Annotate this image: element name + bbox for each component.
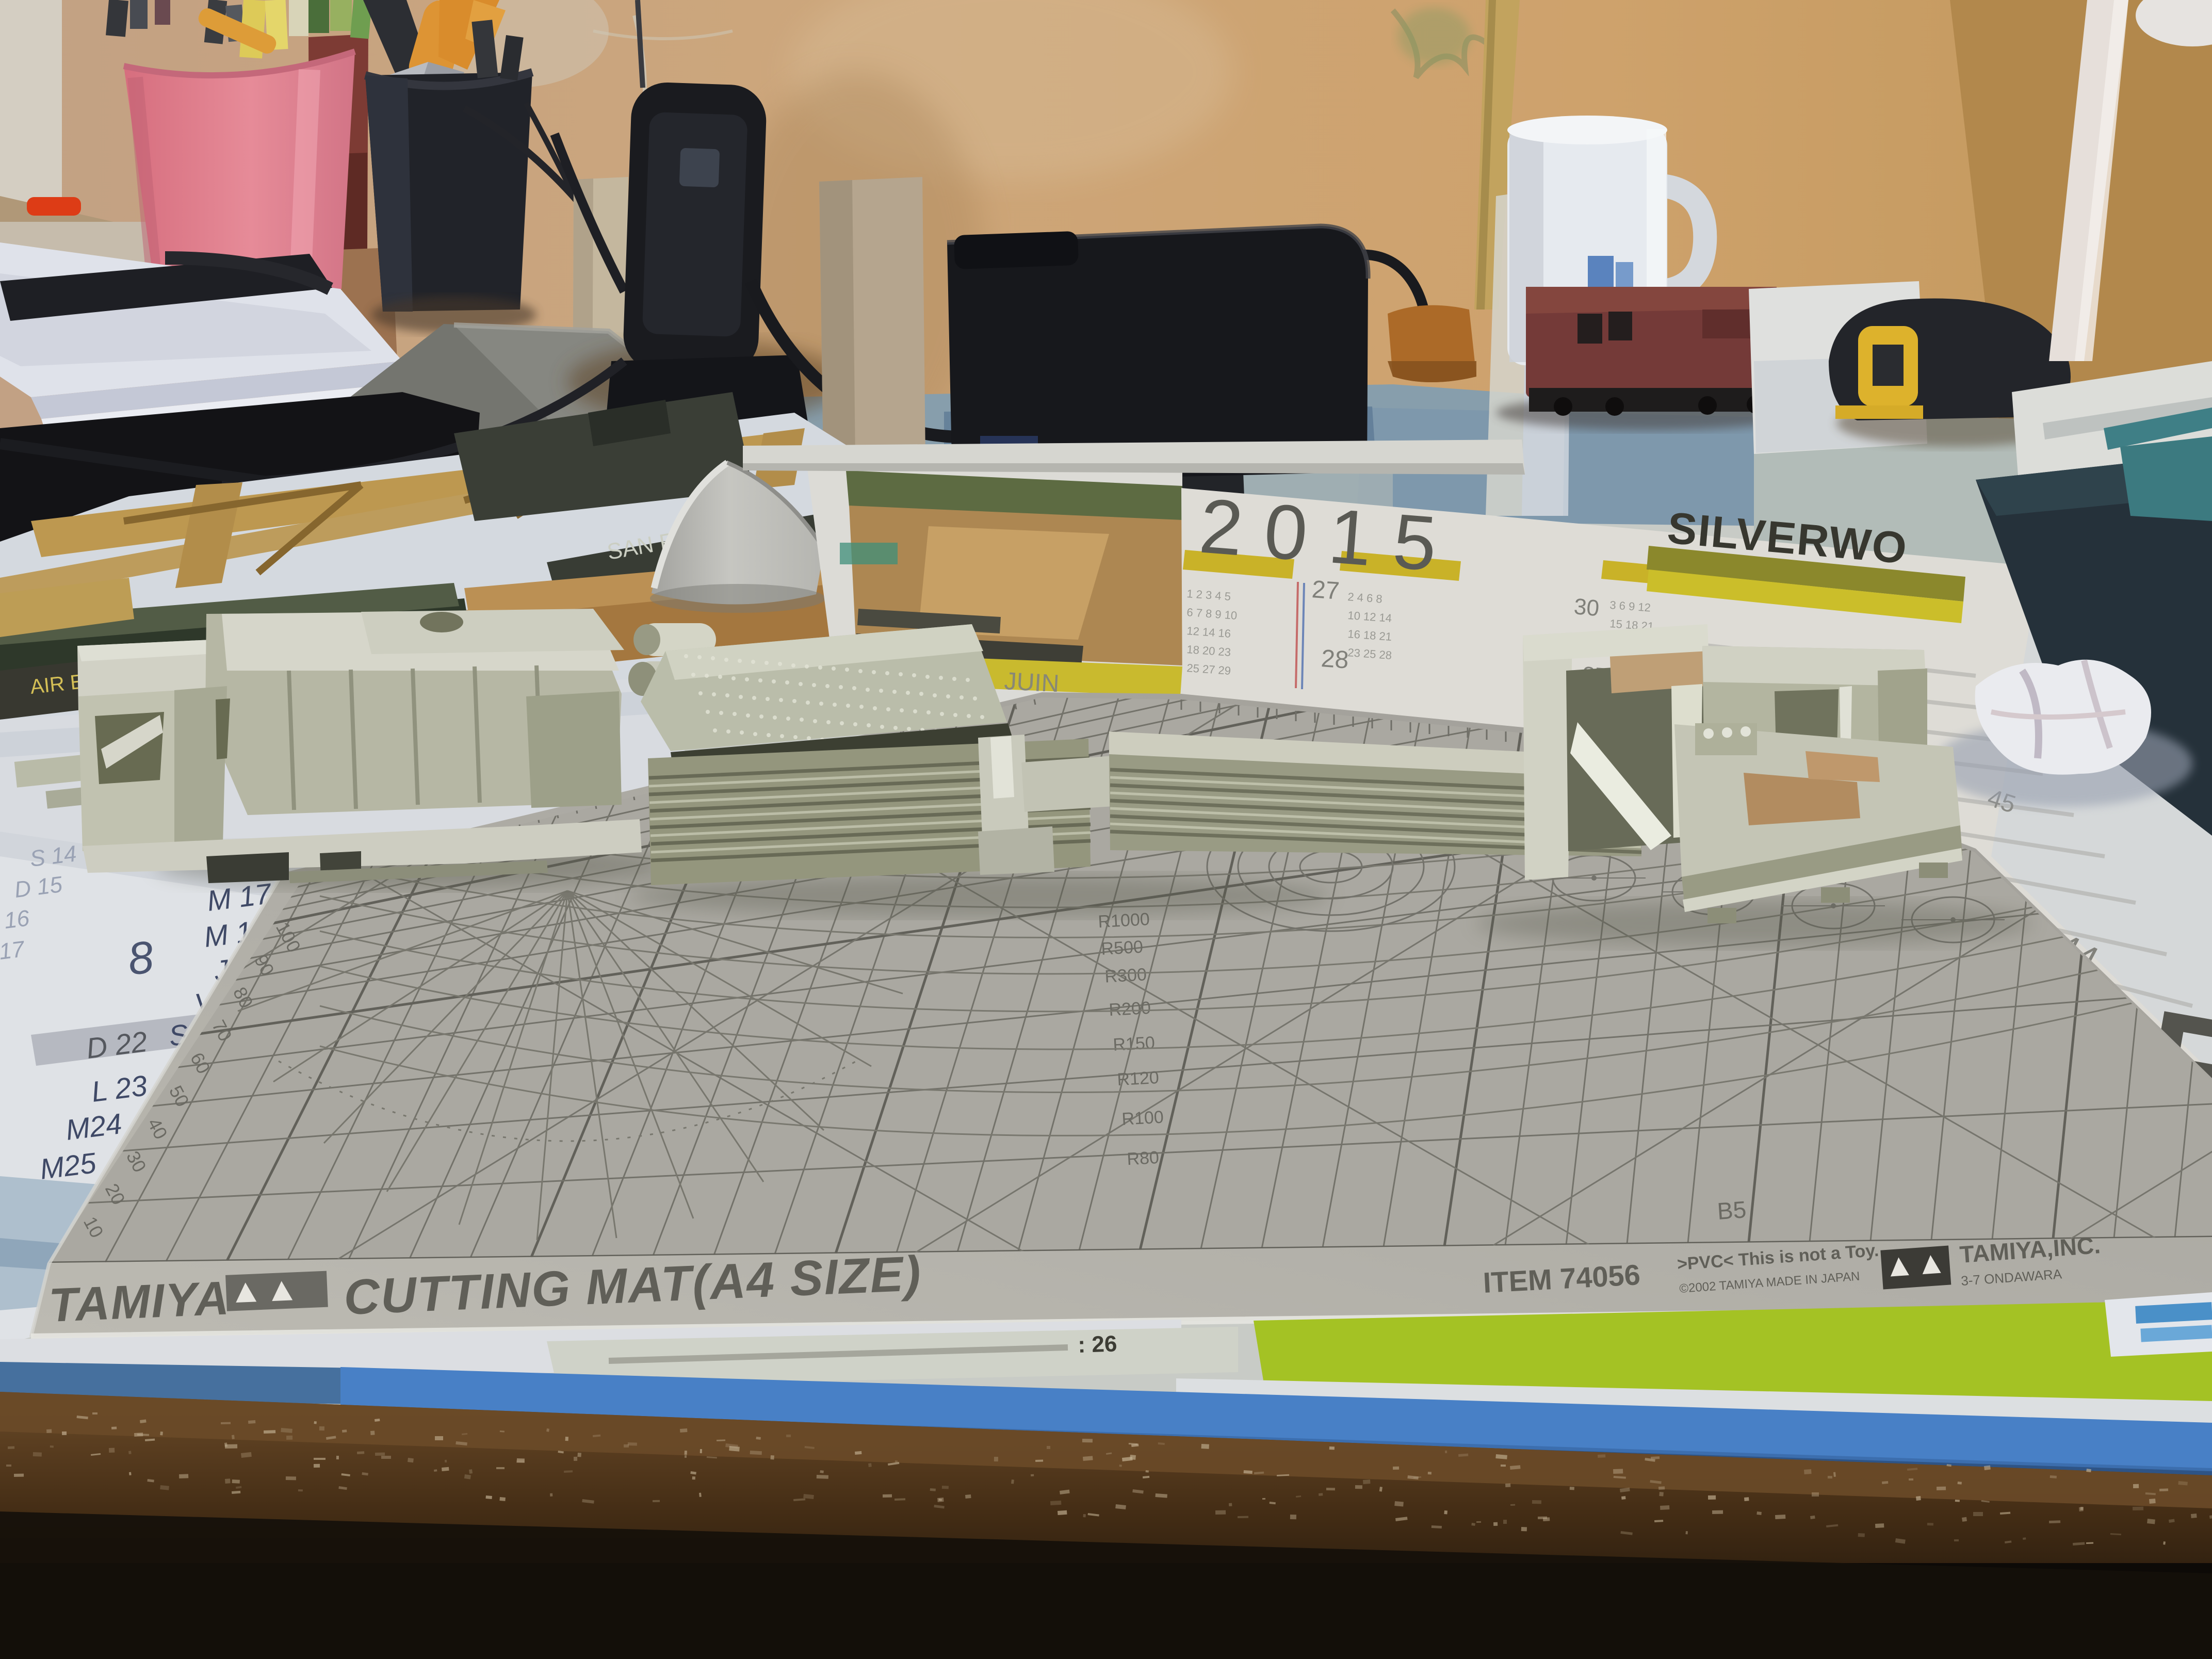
svg-text:B5: B5: [1716, 1196, 1747, 1225]
svg-text:L 23: L 23: [90, 1069, 149, 1108]
svg-text:28: 28: [1320, 645, 1349, 674]
svg-text:: 26: : 26: [1078, 1331, 1117, 1358]
svg-text:R500: R500: [1101, 937, 1144, 959]
svg-text:2 4 6 8: 2 4 6 8: [1347, 590, 1383, 606]
svg-text:R150: R150: [1113, 1033, 1156, 1054]
svg-text:R100: R100: [1121, 1108, 1164, 1129]
svg-text:16: 16: [3, 905, 31, 934]
svg-text:M25: M25: [38, 1146, 99, 1185]
svg-text:27: 27: [1311, 576, 1340, 605]
svg-text:30: 30: [1573, 594, 1600, 621]
svg-text:TAMIYA: TAMIYA: [48, 1272, 231, 1332]
svg-text:R200: R200: [1109, 998, 1151, 1020]
svg-text:M24: M24: [64, 1107, 124, 1146]
svg-text:17: 17: [0, 936, 26, 965]
svg-text:R120: R120: [1117, 1068, 1160, 1089]
svg-text:R80: R80: [1127, 1148, 1160, 1169]
svg-text:R300: R300: [1104, 965, 1147, 986]
